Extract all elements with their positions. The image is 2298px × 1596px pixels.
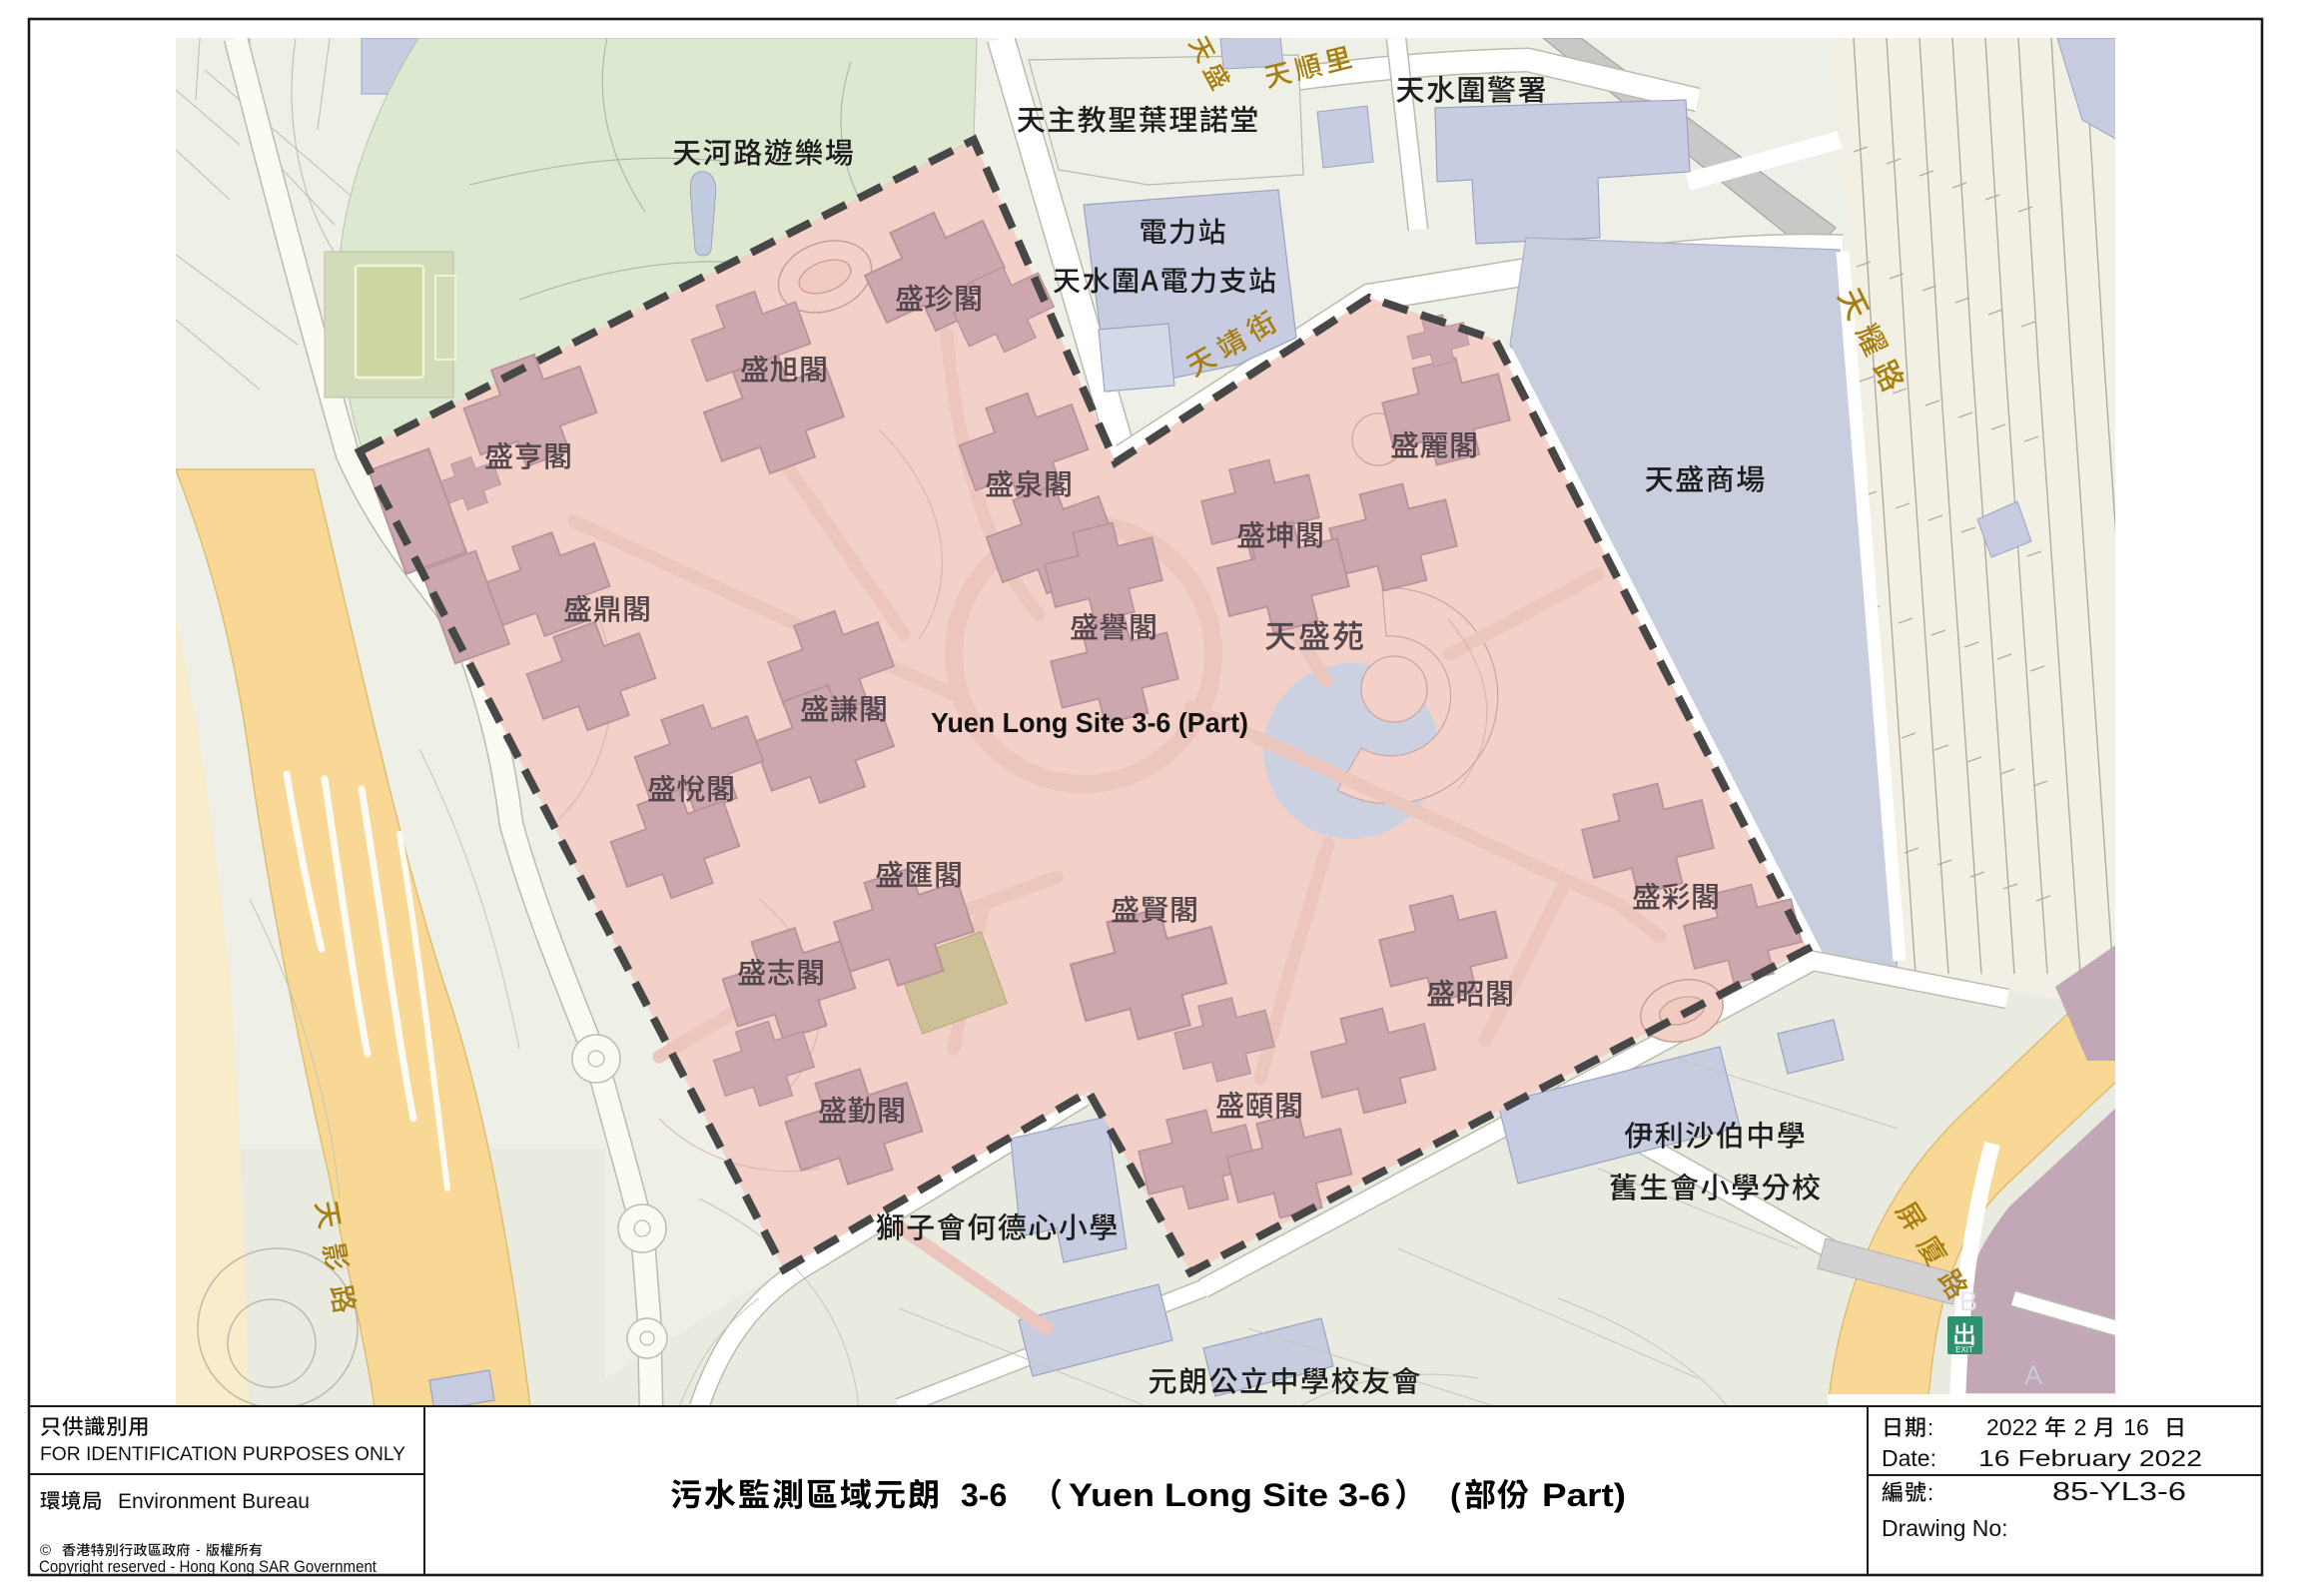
svg-text:FOR IDENTIFICATION PURPOSES ON: FOR IDENTIFICATION PURPOSES ONLY — [40, 1444, 405, 1465]
svg-text::: : — [1927, 1415, 1933, 1440]
svg-text:Yuen Long Site 3-6 (Part): Yuen Long Site 3-6 (Part) — [931, 707, 1248, 738]
svg-text:2022: 2022 — [1986, 1414, 2037, 1440]
svg-text:Drawing No:: Drawing No: — [1882, 1515, 2008, 1541]
svg-text:-: - — [196, 1541, 201, 1557]
svg-text:16: 16 — [2123, 1414, 2149, 1440]
svg-text:Yuen Long Site 3-6: Yuen Long Site 3-6 — [1069, 1477, 1390, 1513]
svg-text:3-6: 3-6 — [961, 1477, 1007, 1513]
svg-text:85-YL3-6: 85-YL3-6 — [2052, 1476, 2186, 1506]
svg-text:Environment Bureau: Environment Bureau — [118, 1489, 310, 1513]
svg-text:B: B — [1959, 1286, 1977, 1316]
svg-text:(: ( — [1450, 1477, 1461, 1513]
svg-text:16 February 2022: 16 February 2022 — [1978, 1445, 2202, 1471]
svg-text::: : — [1927, 1480, 1933, 1505]
svg-text:©: © — [40, 1542, 51, 1559]
svg-text:EXIT: EXIT — [1955, 1345, 1973, 1354]
svg-text:Part): Part) — [1542, 1477, 1626, 1513]
svg-text:A: A — [2024, 1360, 2042, 1390]
svg-text:Date:: Date: — [1882, 1445, 1936, 1471]
svg-text:2: 2 — [2074, 1414, 2087, 1440]
svg-text:Copyright reserved - Hong Kong: Copyright reserved - Hong Kong SAR Gover… — [39, 1558, 377, 1576]
